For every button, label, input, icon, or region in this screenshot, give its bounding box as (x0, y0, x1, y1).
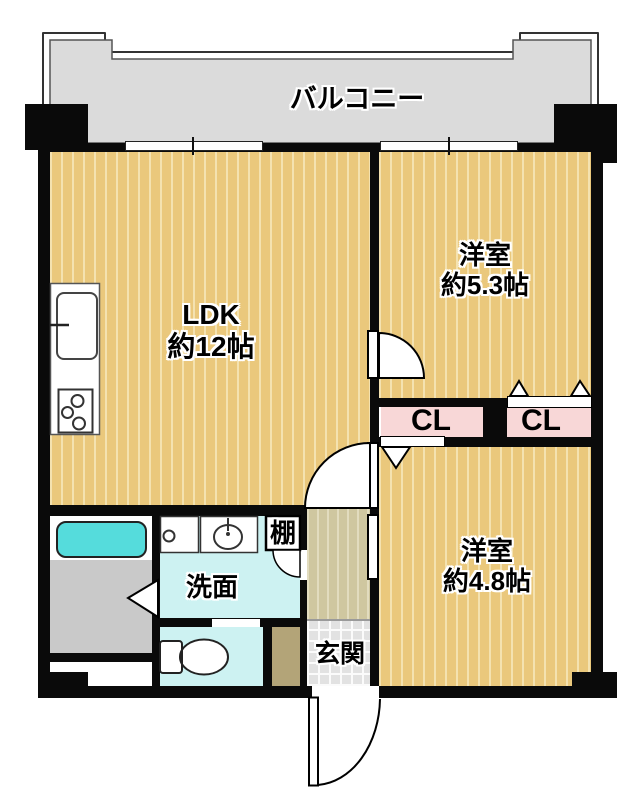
hallway-door-leaf (367, 442, 379, 509)
western-room-2-size: 約4.8帖 (443, 566, 531, 596)
washroom-door-gap (300, 550, 307, 580)
western-room-1-door-leaf (367, 330, 379, 379)
wall-ldk-bottom (38, 505, 307, 516)
wall-left (38, 143, 50, 698)
shelf-label: 棚 (266, 519, 300, 549)
entrance-label: 玄関 (288, 640, 392, 669)
wall-corner-block (572, 672, 617, 698)
western-room-2-sliding-door (367, 514, 379, 580)
wall-center-vertical (370, 152, 379, 686)
balcony-window-1 (125, 141, 263, 151)
floor-plan: バルコニー LDK 約12帖 洋室 約5.3帖 洋室 約4.8帖 CL CL 洗… (0, 0, 643, 800)
window-2-mullion (448, 137, 450, 155)
wall-recess-block (50, 672, 88, 686)
western-room-1-size: 約5.3帖 (441, 270, 529, 300)
hallway-floor (307, 508, 370, 620)
wall-toilet-right (263, 627, 272, 686)
entrance-step-edge (307, 619, 370, 621)
ldk-label: LDK 約12帖 (111, 299, 311, 363)
western-room-2-label: 洋室 約4.8帖 (387, 537, 587, 597)
wall-below-bath (38, 653, 160, 662)
closet-left-label: CL (391, 404, 471, 439)
ldk-size: 約12帖 (167, 331, 254, 362)
toilet-door-gap (212, 619, 260, 627)
western-room-2-name: 洋室 (461, 536, 513, 566)
front-door-gap (312, 686, 379, 698)
washroom-label: 洗面 (142, 573, 282, 603)
western-room-1-name: 洋室 (459, 240, 511, 270)
balcony-label: バルコニー (257, 84, 457, 115)
ldk-name: LDK (182, 299, 240, 330)
closet-right-label: CL (501, 404, 581, 439)
window-1-mullion (192, 137, 194, 155)
western-room-1-label: 洋室 約5.3帖 (385, 241, 585, 301)
hallway-threshold (307, 507, 370, 509)
bathroom-floor (50, 560, 152, 653)
wall-top (38, 143, 603, 152)
bathroom-upper-area (50, 516, 152, 560)
toilet-floor (160, 627, 263, 686)
wall-right (591, 143, 603, 698)
